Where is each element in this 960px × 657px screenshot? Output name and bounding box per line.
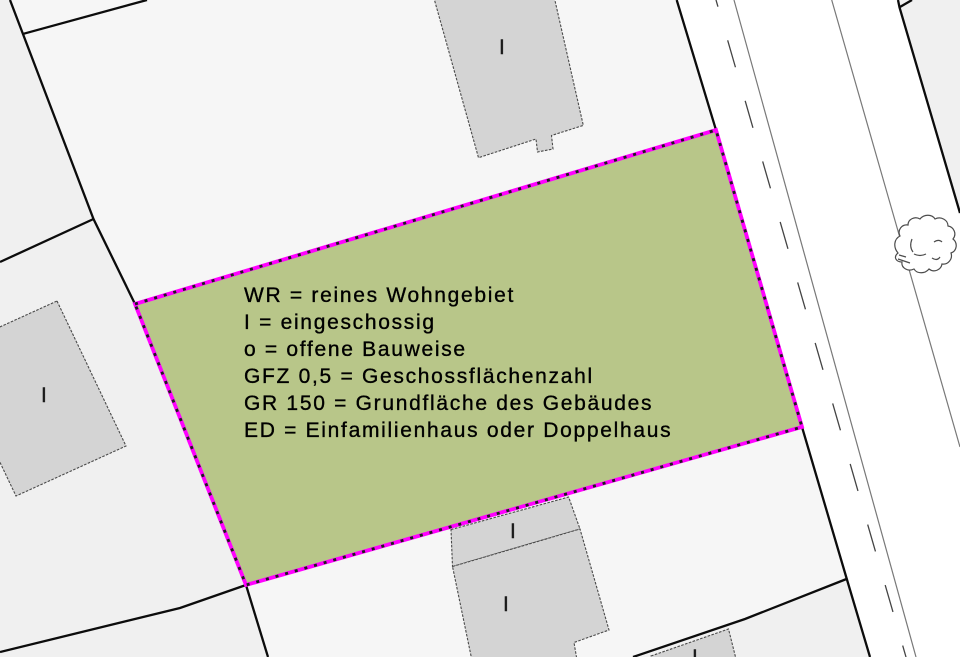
- svg-text:I: I: [510, 520, 516, 543]
- svg-text:GFZ 0,5 = Geschossflächenzahl: GFZ 0,5 = Geschossflächenzahl: [244, 365, 594, 388]
- svg-text:I: I: [41, 384, 47, 407]
- svg-text:I: I: [499, 36, 505, 59]
- svg-text:ED = Einfamilienhaus oder Dopp: ED = Einfamilienhaus oder Doppelhaus: [244, 419, 672, 442]
- svg-text:I: I: [503, 593, 509, 616]
- svg-text:I = eingeschossig: I = eingeschossig: [244, 311, 436, 334]
- svg-text:WR = reines Wohngebiet: WR = reines Wohngebiet: [244, 284, 515, 307]
- svg-text:I: I: [692, 646, 698, 657]
- svg-text:GR 150 = Grundfläche des Gebäu: GR 150 = Grundfläche des Gebäudes: [244, 392, 653, 415]
- svg-text:o = offene Bauweise: o = offene Bauweise: [244, 338, 467, 361]
